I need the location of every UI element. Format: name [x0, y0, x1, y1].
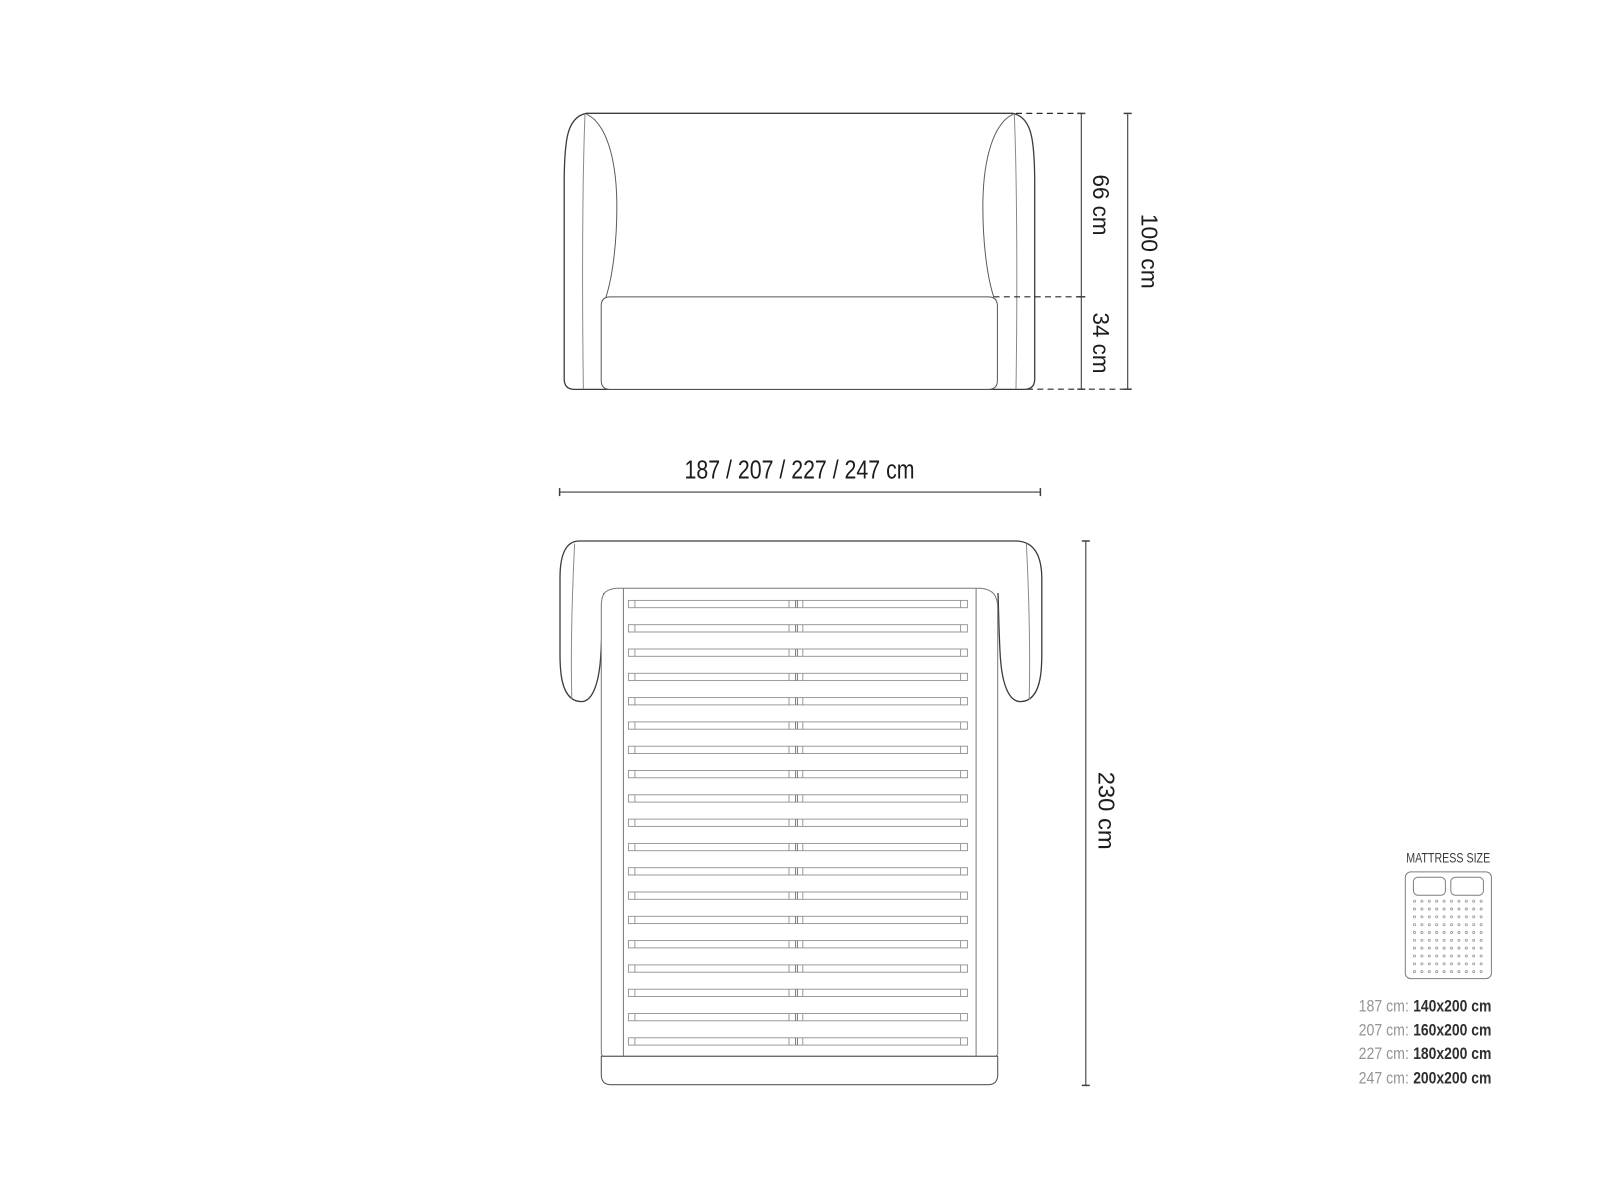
svg-text:100 cm: 100 cm — [1136, 214, 1162, 289]
svg-text:187 / 207 / 227 / 247 cm: 187 / 207 / 227 / 247 cm — [685, 455, 915, 485]
svg-text:66 cm: 66 cm — [1088, 175, 1114, 236]
svg-text:200x200 cm: 200x200 cm — [1413, 1069, 1491, 1087]
svg-text:34 cm: 34 cm — [1088, 313, 1114, 374]
svg-text:160x200 cm: 160x200 cm — [1413, 1021, 1491, 1039]
svg-text:140x200 cm: 140x200 cm — [1413, 997, 1491, 1015]
svg-text:180x200 cm: 180x200 cm — [1413, 1045, 1491, 1063]
svg-text:230 cm: 230 cm — [1093, 772, 1119, 850]
svg-text:187 cm:: 187 cm: — [1359, 997, 1409, 1015]
svg-text:227 cm:: 227 cm: — [1359, 1045, 1409, 1063]
svg-text:207 cm:: 207 cm: — [1359, 1021, 1409, 1039]
svg-text:MATTRESS SIZE: MATTRESS SIZE — [1406, 851, 1490, 867]
svg-text:247 cm:: 247 cm: — [1359, 1069, 1409, 1087]
